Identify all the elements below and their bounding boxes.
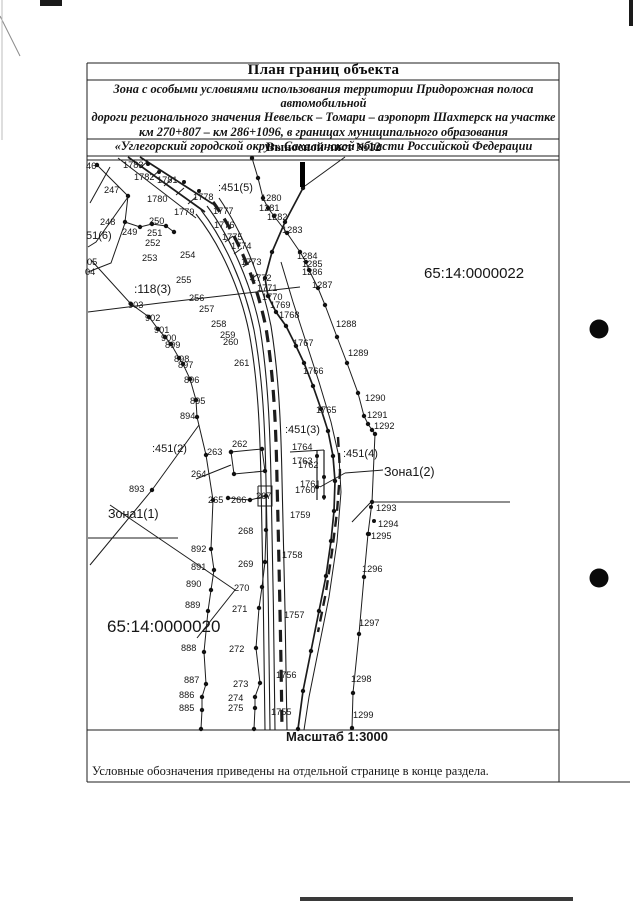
survey-point-dot [195, 415, 199, 419]
survey-point-dot [323, 303, 327, 307]
map-point-label: 1783 [123, 160, 143, 170]
map-point-label: 273 [233, 679, 248, 689]
map-point-label: 1760 [295, 485, 315, 495]
map-point-label: 254 [180, 250, 195, 260]
map-point-label: 1755 [271, 707, 291, 717]
map-point-label: 897 [178, 360, 193, 370]
survey-point-dot [150, 488, 154, 492]
parcel-number-label: :118(3) [134, 282, 171, 296]
map-point-label: 1296 [362, 564, 382, 574]
map-point-label: 271 [232, 604, 247, 614]
map-point-label: 1781 [157, 175, 177, 185]
map-point-label: 04 [85, 267, 95, 277]
survey-point-dot [260, 585, 264, 589]
map-point-label: 1757 [284, 610, 304, 620]
survey-point-dot [229, 450, 233, 454]
boundary-line [345, 470, 383, 473]
map-point-label: 1290 [365, 393, 385, 403]
map-point-label: 263 [207, 447, 222, 457]
map-point-label: 891 [191, 562, 206, 572]
map-point-label: 895 [190, 396, 205, 406]
survey-point-dot [172, 230, 176, 234]
map-point-label: 261 [234, 358, 249, 368]
map-point-label: 894 [180, 411, 195, 421]
zone-label: Зона1(2) [384, 465, 435, 479]
survey-point-dot [264, 528, 268, 532]
map-point-label: 902 [145, 313, 160, 323]
map-point-label: 1773 [241, 257, 261, 267]
scan-fold-line [0, 16, 20, 56]
road-zone-dashed-line [213, 202, 282, 730]
survey-point-dot [256, 176, 260, 180]
parcel-number-label: :451(3) [285, 424, 320, 436]
map-point-label: 249 [122, 227, 137, 237]
survey-point-dot [200, 695, 204, 699]
survey-point-dot [332, 509, 336, 513]
scan-bottom-smudge [300, 897, 573, 901]
map-point-label: 251 [147, 228, 162, 238]
parcel-number-label: 51(6) [86, 230, 112, 242]
map-point-label: 1294 [378, 519, 398, 529]
map-point-label: 899 [165, 340, 180, 350]
map-point-label: 890 [186, 579, 201, 589]
map-point-label: 1280 [261, 193, 281, 203]
map-point-label: 886 [179, 690, 194, 700]
map-point-label: 1297 [359, 618, 379, 628]
map-point-label: 887 [184, 675, 199, 685]
survey-point-dot [270, 250, 274, 254]
map-point-label: 275 [228, 703, 243, 713]
map-point-label: 1774 [231, 241, 251, 251]
map-point-label: 268 [238, 526, 253, 536]
map-point-label: 266 [231, 495, 246, 505]
map-point-label: 1756 [276, 670, 296, 680]
survey-point-dot [252, 727, 256, 731]
map-point-label: 1769 [270, 300, 290, 310]
map-point-label: 267 [256, 491, 271, 501]
survey-point-dot [209, 547, 213, 551]
survey-point-dot [345, 361, 349, 365]
survey-point-dot [356, 391, 360, 395]
survey-point-dot [232, 472, 236, 476]
survey-point-dot [258, 681, 262, 685]
bold-bar-mark [300, 162, 305, 187]
map-point-label: 893 [129, 484, 144, 494]
map-point-label: 1765 [316, 405, 336, 415]
survey-point-dot [372, 519, 376, 523]
survey-point-dot [253, 695, 257, 699]
punch-hole-mark [590, 320, 609, 339]
survey-point-dot [311, 384, 315, 388]
survey-point-dot [322, 495, 326, 499]
map-point-label: 1293 [376, 503, 396, 513]
map-point-label: 1287 [312, 280, 332, 290]
map-point-label: 1772 [251, 273, 271, 283]
map-point-label: 1762 [298, 460, 318, 470]
map-point-label: 256 [189, 293, 204, 303]
map-point-label: 888 [181, 643, 196, 653]
survey-point-dot [326, 429, 330, 433]
map-point-label: 262 [232, 439, 247, 449]
map-point-label: 1295 [371, 531, 391, 541]
parcel-number-label: :451(5) [218, 182, 253, 194]
map-point-label: 1288 [336, 319, 356, 329]
survey-point-dot [263, 469, 267, 473]
map-point-label: 260 [223, 337, 238, 347]
map-point-label: 252 [145, 238, 160, 248]
parcel-number-label: :451(4) [343, 448, 378, 460]
survey-point-dot [254, 646, 258, 650]
survey-point-dot [204, 682, 208, 686]
survey-point-dot [362, 575, 366, 579]
survey-point-dot [274, 310, 278, 314]
map-point-label: 05 [87, 257, 97, 267]
map-point-label: 265 [208, 495, 223, 505]
map-point-label: 1767 [293, 338, 313, 348]
punch-hole-mark [590, 569, 609, 588]
survey-point-dot [331, 454, 335, 458]
survey-point-dot [324, 574, 328, 578]
boundary-plan-map: 4617831782178124717801778177917771280128… [0, 0, 633, 905]
survey-point-dot [315, 454, 319, 458]
survey-point-dot [362, 414, 366, 418]
map-point-label: 258 [211, 319, 226, 329]
survey-point-dot [202, 650, 206, 654]
survey-point-dot [260, 447, 264, 451]
survey-point-dot [206, 609, 210, 613]
map-point-label: 264 [191, 469, 206, 479]
map-point-label: 46 [86, 161, 96, 171]
map-point-label: 885 [179, 703, 194, 713]
survey-point-dot [257, 606, 261, 610]
scan-edge-mark [629, 0, 633, 26]
survey-point-dot [309, 649, 313, 653]
map-point-label: 274 [228, 693, 243, 703]
boundary-line [352, 503, 370, 522]
survey-point-dot [302, 361, 306, 365]
survey-point-dot [226, 496, 230, 500]
map-point-label: 1286 [302, 267, 322, 277]
survey-point-dot [182, 180, 186, 184]
survey-point-dot [253, 706, 257, 710]
map-point-label: 1289 [348, 348, 368, 358]
map-point-label: 250 [149, 216, 164, 226]
map-point-label: 1768 [279, 310, 299, 320]
cadastral-quarter-label: 65:14:0000020 [107, 617, 220, 636]
survey-point-dot [138, 225, 142, 229]
survey-point-dot [164, 224, 168, 228]
survey-point-dot [373, 432, 377, 436]
map-point-label: 1777 [213, 206, 233, 216]
map-point-label: 1782 [134, 172, 154, 182]
map-point-label: 1292 [374, 421, 394, 431]
survey-point-dot [369, 505, 373, 509]
map-point-label: 1778 [193, 192, 213, 202]
map-point-label: 1298 [351, 674, 371, 684]
map-point-label: 1758 [282, 550, 302, 560]
survey-point-dot [357, 632, 361, 636]
map-point-label: 269 [238, 559, 253, 569]
survey-point-dot [284, 324, 288, 328]
map-point-label: 1764 [292, 442, 312, 452]
cadastral-quarter-label: 65:14:0000022 [424, 265, 524, 282]
map-point-label: 1291 [367, 410, 387, 420]
survey-point-dot [250, 156, 254, 160]
map-point-label: 892 [191, 544, 206, 554]
map-point-label: 1282 [267, 212, 287, 222]
boundary-line [91, 260, 214, 729]
map-point-label: 248 [100, 217, 115, 227]
scale-label: Масштаб 1:3000 [286, 729, 388, 744]
map-point-label: 1283 [282, 225, 302, 235]
scan-corner-mark [40, 0, 62, 6]
map-point-label: 903 [128, 300, 143, 310]
survey-point-dot [209, 588, 213, 592]
map-point-label: 1780 [147, 194, 167, 204]
survey-point-dot [335, 335, 339, 339]
parcel-number-label: :451(2) [152, 443, 187, 455]
map-point-label: 1299 [353, 710, 373, 720]
map-point-label: 253 [142, 253, 157, 263]
survey-point-dot [301, 689, 305, 693]
map-point-label: 1766 [303, 366, 323, 376]
map-point-label: 1779 [174, 207, 194, 217]
survey-point-dot [212, 568, 216, 572]
scanned-plan-page: План границ объекта Зона с особыми услов… [0, 0, 633, 905]
survey-point-dot [199, 727, 203, 731]
map-point-label: 247 [104, 185, 119, 195]
zone-label: Зона1(1) [108, 507, 159, 521]
survey-point-dot [366, 422, 370, 426]
survey-point-dot [248, 498, 252, 502]
survey-point-dot [317, 609, 321, 613]
survey-point-dot [322, 475, 326, 479]
map-point-label: 255 [176, 275, 191, 285]
survey-point-dot [351, 691, 355, 695]
map-point-label: 889 [185, 600, 200, 610]
map-point-label: 896 [184, 375, 199, 385]
survey-point-dot [200, 708, 204, 712]
map-point-label: 1776 [214, 220, 234, 230]
map-point-label: 272 [229, 644, 244, 654]
map-point-label: 1759 [290, 510, 310, 520]
survey-point-dot [263, 560, 267, 564]
map-point-label: 270 [234, 583, 249, 593]
map-point-label: 257 [199, 304, 214, 314]
boundary-line [305, 157, 345, 186]
